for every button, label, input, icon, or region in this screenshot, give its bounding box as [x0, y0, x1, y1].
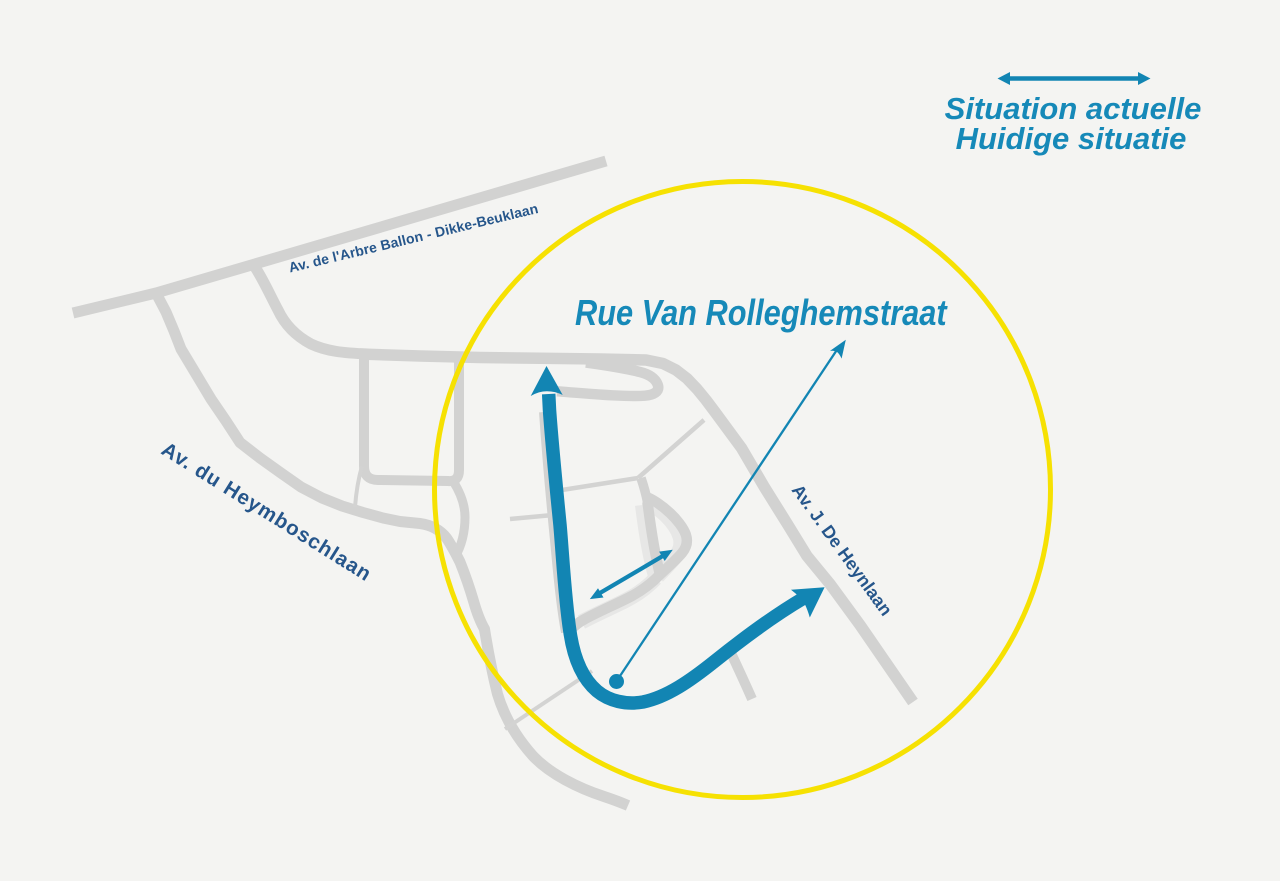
svg-text:Huidige situatie: Huidige situatie: [956, 121, 1187, 156]
svg-text:Rue Van Rolleghemstraat: Rue Van Rolleghemstraat: [575, 294, 948, 334]
